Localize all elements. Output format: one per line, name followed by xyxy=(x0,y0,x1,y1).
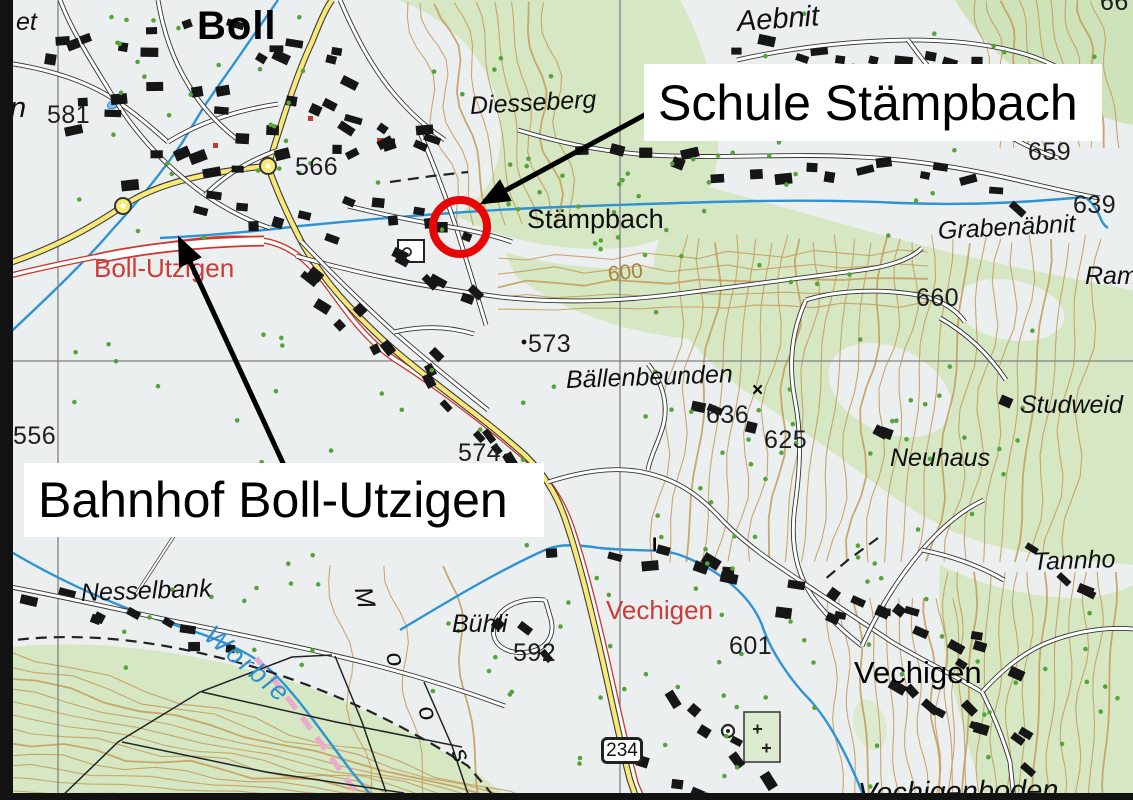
map-screenshot: etBolln581566DiessebergAebnit659Stämpbac… xyxy=(0,0,1133,800)
school-callout-box: Schule Stämpbach xyxy=(644,64,1102,141)
cemetery-area xyxy=(744,712,780,762)
station-callout-label: Bahnhof Boll-Utzigen xyxy=(38,471,508,529)
stop-marker xyxy=(308,116,313,121)
stop-marker xyxy=(213,143,218,148)
station-callout-box: Bahnhof Boll-Utzigen xyxy=(24,463,544,537)
road-shield-234: 234 xyxy=(601,737,643,764)
school-callout-label: Schule Stämpbach xyxy=(658,74,1078,132)
frame-bar-left xyxy=(0,0,13,800)
spot-height-dot xyxy=(522,340,527,345)
frame-bar-bottom xyxy=(0,793,1133,800)
road-shield-number: 234 xyxy=(606,740,638,762)
